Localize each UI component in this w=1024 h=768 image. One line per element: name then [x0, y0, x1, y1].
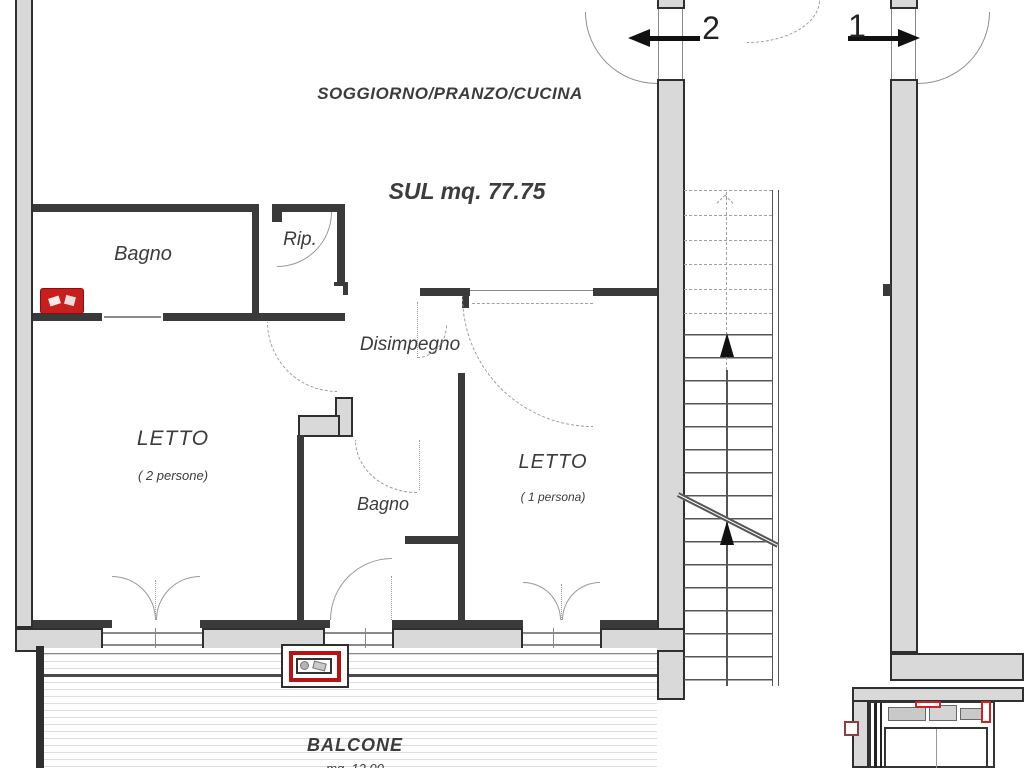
wall-storage-right	[337, 204, 345, 284]
stairs-dashed-tread	[684, 240, 772, 241]
elevator-door-track	[874, 703, 877, 768]
wall-right-notch	[883, 284, 891, 296]
door2-arrow-line	[648, 36, 700, 41]
wall-exterior-left	[15, 0, 33, 628]
living-room-label: SOGGIORNO/PRANZO/CUCINA	[300, 84, 600, 104]
bath2-door-swing-arc-dashed	[355, 440, 417, 493]
door1-number: 1	[842, 8, 872, 45]
balcony-inner-line	[44, 674, 657, 677]
window3-right-leaf-arc	[562, 582, 600, 620]
bath1-label: Bagno	[93, 243, 193, 266]
window2-leaf-arc	[330, 558, 392, 620]
window1-right-leaf-arc	[156, 576, 200, 620]
elevator-top-band	[852, 687, 1024, 702]
elevator-cab-centerline	[936, 729, 937, 768]
bath2-label: Bagno	[338, 494, 428, 515]
door2-arrow-head-icon	[628, 29, 650, 47]
fixture-glyph	[300, 661, 309, 670]
balcony-fixture-red-icon	[289, 651, 341, 682]
stairs-treads	[684, 334, 772, 687]
window3-leaf-line	[561, 584, 562, 620]
wall-bath2-right	[458, 373, 465, 628]
wall-bath1-right	[252, 204, 259, 320]
wall-bottom-d	[600, 620, 657, 628]
balcony-edge-line	[44, 653, 657, 654]
area-label: SUL mq. 77.75	[362, 178, 572, 205]
wall-stairwell-stub-top	[657, 0, 685, 9]
wall-bath2-inner	[405, 536, 458, 544]
wall-right-stub-top	[890, 0, 918, 9]
stairs-dashed-tread	[684, 289, 772, 290]
wall-right-lower-band	[890, 653, 1024, 681]
stairs-up-chevron-dashed-icon	[717, 195, 734, 212]
door2-jamb-right	[682, 9, 683, 79]
door2-swing-arc	[585, 12, 657, 84]
bed1-capacity-label: ( 1 persona)	[503, 490, 603, 504]
door2-number: 2	[696, 10, 726, 47]
balcony-area-label: mq. 12.00	[300, 761, 410, 768]
bed1-label: LETTO	[503, 451, 603, 474]
wall-bath2-bump-horizontal	[298, 415, 340, 437]
stairs-dashed-tread	[684, 190, 772, 191]
bed2-capacity-label: ( 2 persone)	[108, 468, 238, 483]
door1-arrow-head-icon	[898, 29, 920, 47]
window3-left-leaf-arc	[523, 582, 561, 620]
wall-bath1-bottom-a	[33, 313, 102, 321]
elevator-red-bracket-icon	[915, 701, 941, 708]
bath2-door-leaf-dashed	[419, 440, 420, 490]
elevator-machinery-glyph	[888, 707, 926, 721]
wall-bed1-top-a	[420, 288, 470, 296]
bath1-appliance-red-icon	[40, 288, 84, 314]
wall-right	[890, 79, 918, 653]
appliance-glyph	[64, 295, 76, 306]
wall-storage-endcap-b	[343, 282, 348, 295]
wall-bath1-bottom-b	[163, 313, 345, 321]
wall-bed2-right	[297, 435, 304, 628]
floor-plan: 2 1 SOGGIORNO/PRANZO/CUCINA SUL mq. 77.7…	[0, 0, 1024, 768]
bed2-door-swing-arc-dashed	[267, 322, 337, 392]
storage-door-swing-arc	[277, 212, 332, 267]
wall-bottom-b	[200, 620, 330, 628]
balcony-label: BALCONE	[288, 735, 422, 756]
bed1-door-head-line	[470, 290, 593, 291]
landing-door-swing-arc-dashed	[747, 0, 820, 43]
window3-sill	[523, 644, 600, 646]
balcony-left-parapet	[36, 646, 44, 768]
window1-leaf-line	[155, 580, 156, 620]
elevator-red-bracket-icon	[981, 701, 991, 723]
wall-bottom-c	[392, 620, 523, 628]
window1-sill	[103, 644, 202, 646]
window3-sill	[523, 632, 600, 634]
stairs-dashed-tread	[684, 215, 772, 216]
wall-bottom-a	[33, 620, 112, 628]
appliance-glyph	[48, 295, 61, 306]
window2-sill	[325, 632, 392, 634]
wall-bath1-top-b	[278, 204, 340, 212]
bed1-door-swing-arc-dashed	[462, 296, 593, 427]
bed2-label: LETTO	[108, 427, 238, 451]
stairs-up-arrow-icon	[720, 333, 734, 357]
elevator-door-track	[880, 703, 882, 768]
door2-jamb-left	[658, 9, 659, 79]
door1-jamb-left	[891, 9, 892, 79]
door1-swing-arc	[918, 12, 990, 84]
hall-label: Disimpegno	[340, 334, 480, 356]
window2-leaf-line	[391, 576, 392, 620]
window1-sill	[103, 632, 202, 634]
wall-bed1-top-b	[593, 288, 657, 296]
stairs-dashed-tread	[684, 313, 772, 314]
landing-fixture	[844, 721, 859, 736]
bath1-door-sill	[104, 316, 161, 318]
stairs-dashed-tread	[684, 264, 772, 265]
wall-bath1-top-a	[33, 204, 258, 212]
window1-left-leaf-arc	[112, 576, 156, 620]
stairs-right-rail	[772, 190, 779, 686]
wall-stairwell	[657, 79, 685, 700]
